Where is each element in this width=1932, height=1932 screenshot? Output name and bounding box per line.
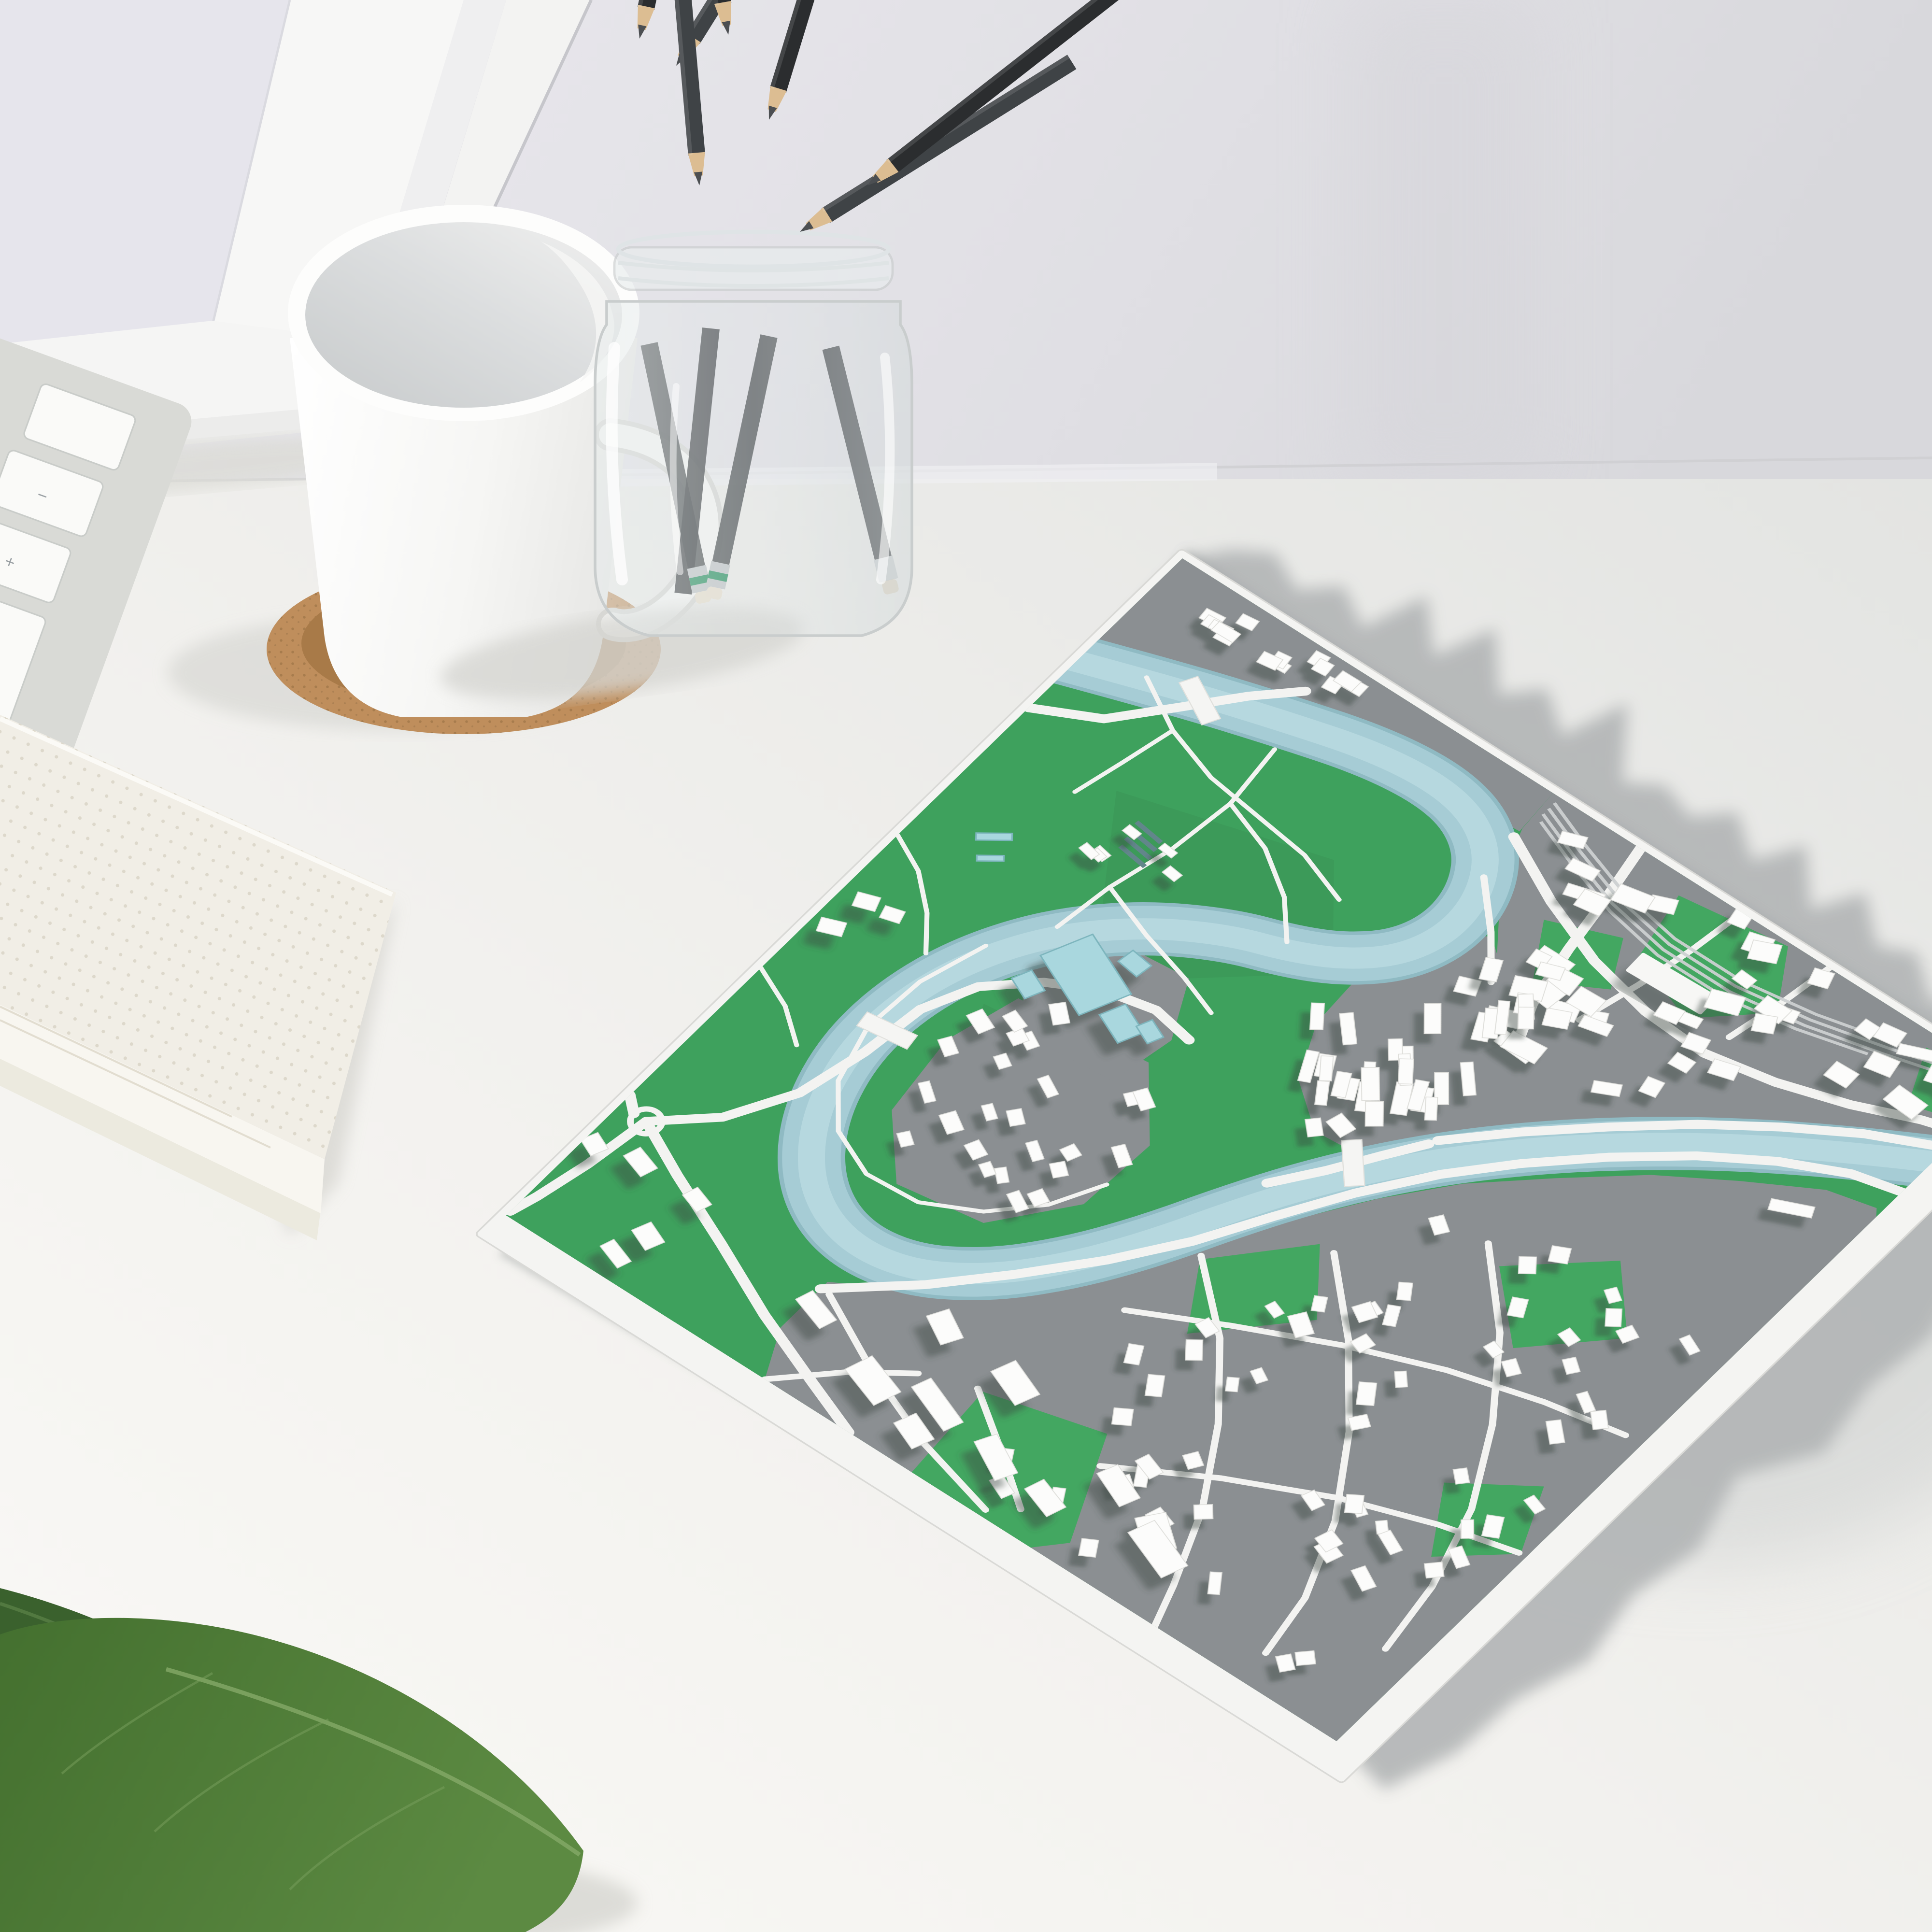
building (1185, 1340, 1203, 1361)
building (1453, 1468, 1470, 1484)
building (1305, 1118, 1323, 1137)
building (1208, 1572, 1222, 1594)
building (1394, 1371, 1407, 1387)
building (1518, 1007, 1534, 1029)
building (1345, 1494, 1364, 1514)
mug-interior (305, 222, 622, 408)
building (1320, 1056, 1334, 1081)
building (1315, 1081, 1329, 1106)
building (1461, 1062, 1476, 1095)
teal-river-strip (976, 833, 1012, 840)
building (1398, 1059, 1414, 1084)
building (1424, 1004, 1441, 1034)
building (1311, 1295, 1328, 1312)
building (1548, 1246, 1571, 1264)
wall-soft-shadow (1352, 0, 1536, 487)
building (1605, 1308, 1622, 1327)
building (1225, 1377, 1239, 1392)
building (1310, 1003, 1324, 1030)
building (1461, 1520, 1474, 1538)
building (1050, 1161, 1069, 1178)
building (1425, 1097, 1438, 1120)
building (1194, 1505, 1213, 1520)
bridge (1341, 1139, 1364, 1186)
desk-scene: − + enter (0, 0, 1932, 1932)
building (1397, 1282, 1413, 1300)
building (1112, 1407, 1134, 1425)
building (1424, 1562, 1444, 1578)
building (1356, 1382, 1377, 1406)
mason-jar-glass (595, 301, 912, 636)
building (1591, 1410, 1608, 1430)
teal-river-strip (977, 855, 1004, 861)
building (1361, 1067, 1379, 1101)
building (1519, 1257, 1536, 1274)
building (1079, 1538, 1098, 1557)
building (1295, 1651, 1316, 1666)
building (1365, 1101, 1383, 1126)
building (994, 1167, 1009, 1184)
building (1751, 1013, 1778, 1034)
building (1145, 1374, 1165, 1397)
